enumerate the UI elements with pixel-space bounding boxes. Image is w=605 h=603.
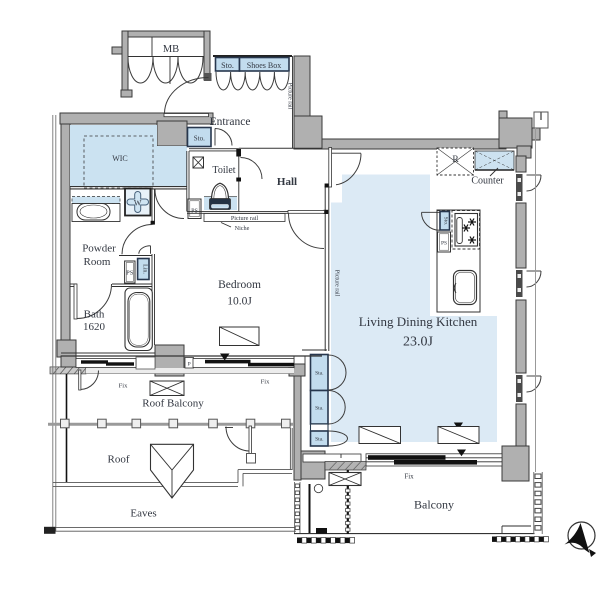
svg-text:Entrance: Entrance (210, 116, 251, 128)
svg-text:Sto.: Sto. (221, 61, 234, 70)
svg-text:PS: PS (191, 209, 198, 215)
svg-text:Living Dining Kitchen: Living Dining Kitchen (359, 314, 478, 329)
svg-text:Sta.: Sta. (315, 437, 324, 443)
svg-text:Bath: Bath (84, 309, 105, 321)
svg-text:Picture rail: Picture rail (287, 83, 293, 110)
svg-text:Fix: Fix (119, 383, 128, 390)
svg-text:Counter: Counter (471, 176, 504, 187)
svg-text:PS: PS (441, 241, 447, 247)
svg-text:Roof: Roof (108, 454, 130, 466)
svg-text:Shoes Box: Shoes Box (247, 61, 281, 70)
svg-text:R: R (452, 155, 459, 165)
svg-text:Roof Balcony: Roof Balcony (142, 398, 204, 410)
svg-text:Eaves: Eaves (130, 508, 156, 520)
svg-text:MB: MB (163, 44, 179, 55)
svg-text:Picture rail: Picture rail (231, 215, 259, 222)
svg-text:Hall: Hall (277, 176, 297, 188)
svg-text:P: P (188, 362, 191, 368)
svg-text:Fix: Fix (404, 473, 414, 481)
svg-text:PS: PS (126, 270, 134, 277)
svg-text:Sta.: Sta. (315, 406, 324, 412)
svg-text:WIC: WIC (112, 154, 128, 163)
svg-text:Room: Room (84, 256, 111, 268)
svg-text:Niche: Niche (235, 225, 250, 232)
svg-text:23.0J: 23.0J (403, 335, 434, 350)
svg-text:Fix: Fix (261, 379, 270, 386)
svg-text:Lin.: Lin. (141, 264, 147, 274)
svg-text:Toilet: Toilet (212, 165, 235, 176)
svg-text:Sto.: Sto. (194, 135, 205, 143)
svg-text:Picture rail: Picture rail (334, 270, 340, 297)
svg-text:Balcony: Balcony (414, 498, 454, 512)
svg-text:Bedroom: Bedroom (218, 279, 261, 291)
svg-text:Powder: Powder (82, 243, 116, 255)
svg-text:1620: 1620 (83, 321, 106, 333)
svg-text:10.0J: 10.0J (227, 296, 252, 308)
svg-text:W: W (134, 199, 142, 208)
svg-text:Sto.: Sto. (443, 217, 449, 226)
svg-text:Sta.: Sta. (315, 371, 324, 377)
